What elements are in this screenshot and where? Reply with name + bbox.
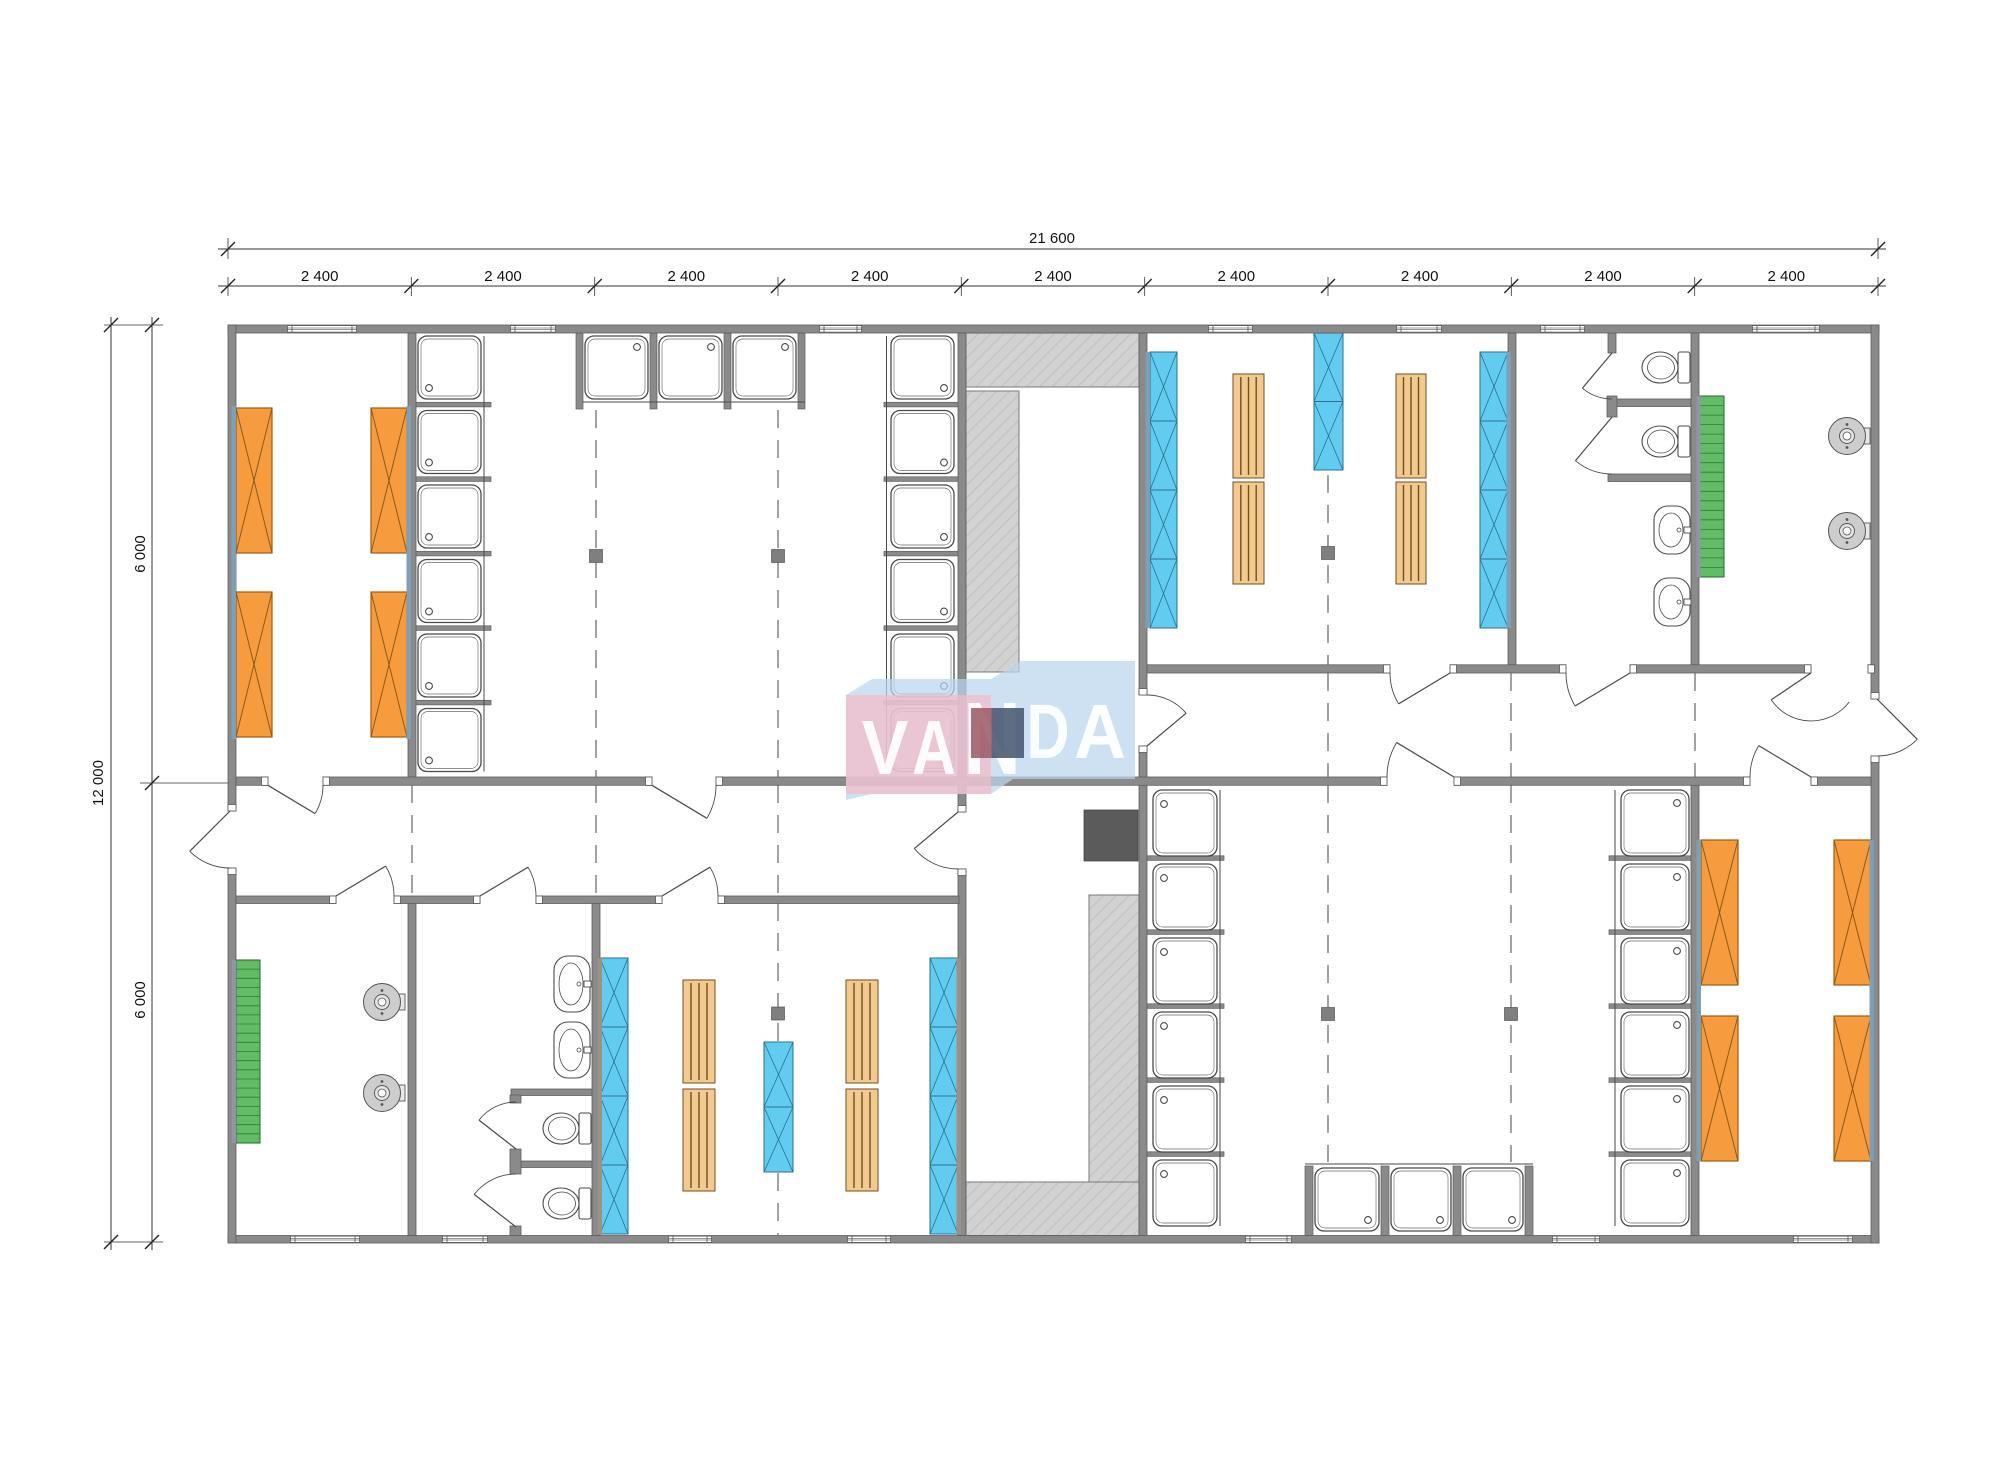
svg-text:2 400: 2 400 [301, 268, 339, 285]
svg-text:2 400: 2 400 [851, 268, 889, 285]
svg-text:2 400: 2 400 [668, 268, 706, 285]
svg-text:2 400: 2 400 [1218, 268, 1256, 285]
svg-text:A: A [912, 705, 956, 791]
svg-text:2 400: 2 400 [1034, 268, 1072, 285]
svg-text:12 000: 12 000 [90, 760, 107, 806]
svg-text:6 000: 6 000 [132, 535, 149, 573]
svg-text:6 000: 6 000 [132, 981, 149, 1019]
svg-text:21 600: 21 600 [1029, 230, 1075, 247]
svg-text:2 400: 2 400 [1401, 268, 1439, 285]
svg-text:D: D [1027, 689, 1070, 775]
svg-text:2 400: 2 400 [484, 268, 522, 285]
svg-text:A: A [1074, 689, 1126, 775]
svg-text:2 400: 2 400 [1768, 268, 1806, 285]
svg-text:2 400: 2 400 [1584, 268, 1622, 285]
svg-text:V: V [862, 705, 909, 791]
